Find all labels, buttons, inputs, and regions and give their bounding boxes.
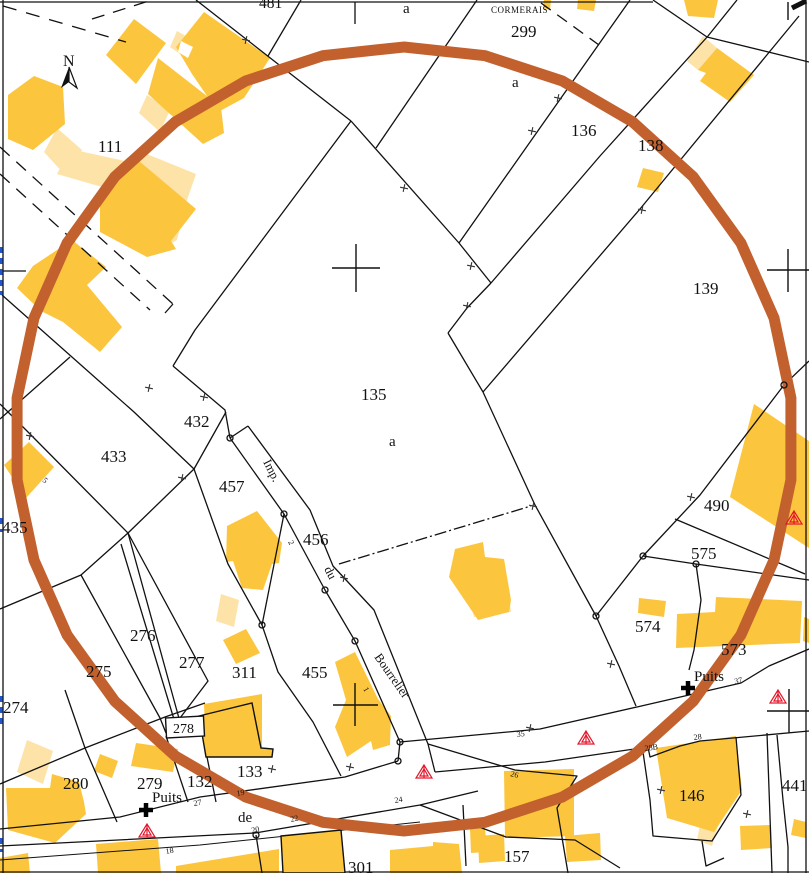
svg-text:a: a [389, 434, 396, 450]
svg-text:455: 455 [302, 663, 328, 682]
svg-text:135: 135 [361, 385, 387, 404]
svg-text:146: 146 [679, 786, 705, 805]
svg-text:27: 27 [193, 798, 202, 808]
svg-text:136: 136 [571, 121, 597, 140]
svg-text:276: 276 [130, 626, 156, 645]
svg-text:139: 139 [693, 279, 719, 298]
svg-text:35: 35 [516, 729, 525, 739]
svg-text:301: 301 [348, 858, 374, 873]
svg-text:435: 435 [2, 518, 28, 537]
svg-text:24: 24 [394, 795, 403, 805]
svg-text:457: 457 [219, 477, 245, 496]
svg-text:Puits: Puits [152, 790, 182, 806]
svg-text:19: 19 [236, 788, 245, 798]
svg-text:157: 157 [504, 847, 530, 866]
svg-text:490: 490 [704, 496, 730, 515]
svg-text:575: 575 [691, 544, 717, 563]
svg-text:274: 274 [3, 698, 29, 717]
svg-text:433: 433 [101, 447, 127, 466]
svg-text:432: 432 [184, 412, 210, 431]
svg-text:138: 138 [638, 136, 664, 155]
svg-text:133: 133 [237, 762, 263, 781]
svg-text:277: 277 [179, 653, 205, 672]
svg-text:CORMERAIS: CORMERAIS [491, 5, 548, 15]
svg-text:111: 111 [98, 137, 122, 156]
svg-text:573: 573 [721, 640, 747, 659]
svg-text:280: 280 [63, 774, 89, 793]
svg-text:311: 311 [232, 663, 257, 682]
svg-text:de: de [238, 810, 253, 826]
svg-text:278: 278 [173, 722, 194, 737]
svg-text:132: 132 [187, 772, 213, 791]
svg-text:275: 275 [86, 662, 112, 681]
svg-text:28: 28 [693, 732, 702, 742]
svg-text:28B: 28B [644, 742, 658, 753]
svg-text:299: 299 [511, 22, 537, 41]
svg-text:a: a [403, 1, 410, 17]
svg-text:441: 441 [782, 776, 808, 795]
svg-text:456: 456 [303, 530, 329, 549]
svg-text:Puits: Puits [694, 669, 724, 685]
svg-text:481: 481 [259, 0, 282, 12]
svg-text:18: 18 [165, 846, 174, 856]
svg-text:574: 574 [635, 617, 661, 636]
svg-text:a: a [512, 75, 519, 91]
